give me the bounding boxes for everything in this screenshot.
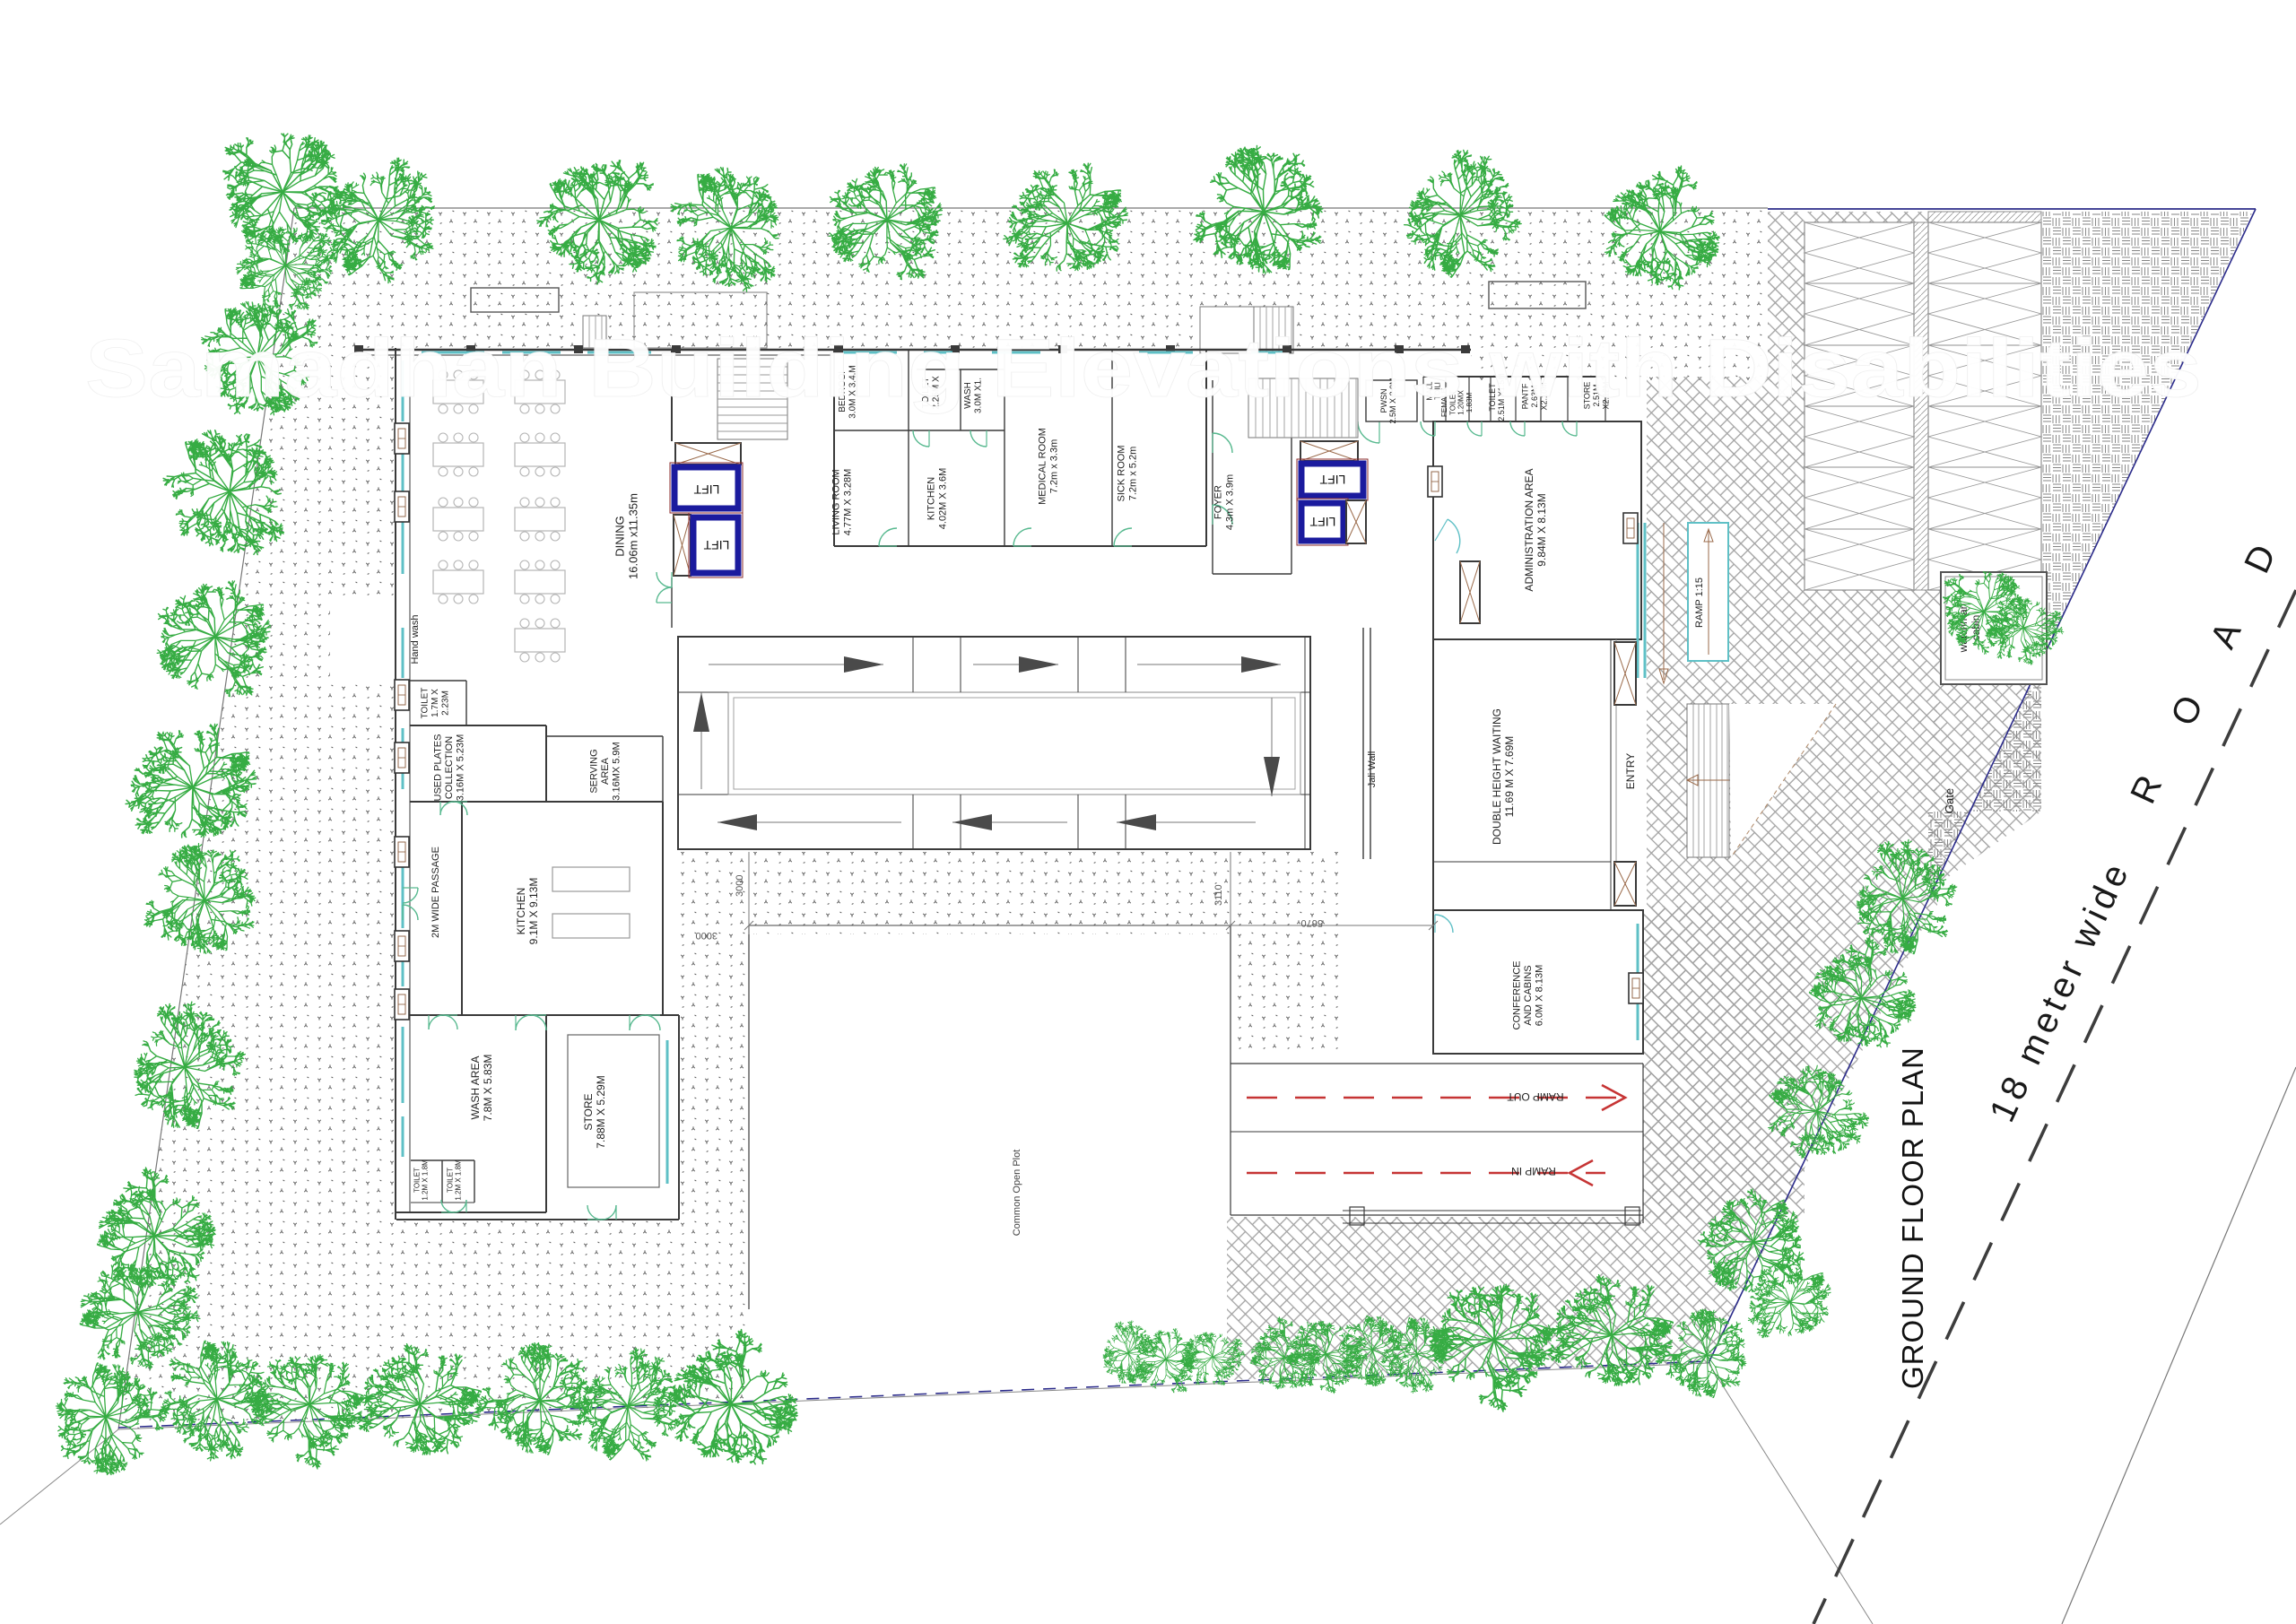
svg-text:SICK ROOM7.2m x 5.2m: SICK ROOM7.2m x 5.2m — [1117, 446, 1139, 502]
svg-text:KITCHEN9.1M X 9.13M: KITCHEN9.1M X 9.13M — [515, 878, 540, 945]
svg-text:3000: 3000 — [735, 875, 745, 897]
svg-text:TOILET1.7M X2.23M: TOILET1.7M X2.23M — [421, 688, 451, 719]
svg-text:Samadhan Building Elevations w: Samadhan Building Elevations with Disabi… — [85, 323, 2202, 414]
svg-text:LIFT: LIFT — [703, 538, 729, 552]
svg-text:Hand wash: Hand wash — [410, 614, 421, 664]
svg-text:3000: 3000 — [696, 930, 717, 941]
svg-text:LIFT: LIFT — [1309, 515, 1335, 529]
svg-text:KITCHEN4.02M X 3.6M: KITCHEN4.02M X 3.6M — [926, 468, 949, 529]
svg-text:2M WIDE PASSAGE: 2M WIDE PASSAGE — [430, 847, 441, 938]
svg-text:GROUND FLOOR PLAN: GROUND FLOOR PLAN — [1896, 1046, 1929, 1389]
svg-text:5670: 5670 — [1301, 917, 1323, 928]
svg-text:LIVING ROOM4.77M X 3.28M: LIVING ROOM4.77M X 3.28M — [831, 469, 854, 536]
svg-text:RAMP IN: RAMP IN — [1511, 1165, 1556, 1177]
svg-text:Jali Wall: Jali Wall — [1367, 751, 1378, 788]
svg-text:CONFERENCEAND CABINS6.0M X 8.1: CONFERENCEAND CABINS6.0M X 8.13M — [1511, 960, 1544, 1029]
svg-text:Gate: Gate — [1943, 788, 1956, 813]
svg-text:LIFT: LIFT — [1319, 473, 1345, 487]
svg-text:MEDICAL ROOM7.2m x 3.3m: MEDICAL ROOM7.2m x 3.3m — [1038, 428, 1060, 505]
svg-text:RAMP OUT: RAMP OUT — [1507, 1090, 1564, 1103]
svg-text:USED PLATESCOLLECTION3.16M X 5: USED PLATESCOLLECTION3.16M X 5.23M — [432, 734, 465, 802]
svg-text:WASH AREA7.8M X 5.83M: WASH AREA7.8M X 5.83M — [469, 1055, 494, 1122]
svg-text:3110: 3110 — [1213, 884, 1224, 906]
svg-text:ENTRY: ENTRY — [1624, 753, 1637, 789]
svg-text:LIFT: LIFT — [693, 482, 719, 497]
svg-text:Common Open Plot: Common Open Plot — [1012, 1150, 1022, 1237]
svg-text:RAMP 1:15: RAMP 1:15 — [1694, 578, 1705, 628]
